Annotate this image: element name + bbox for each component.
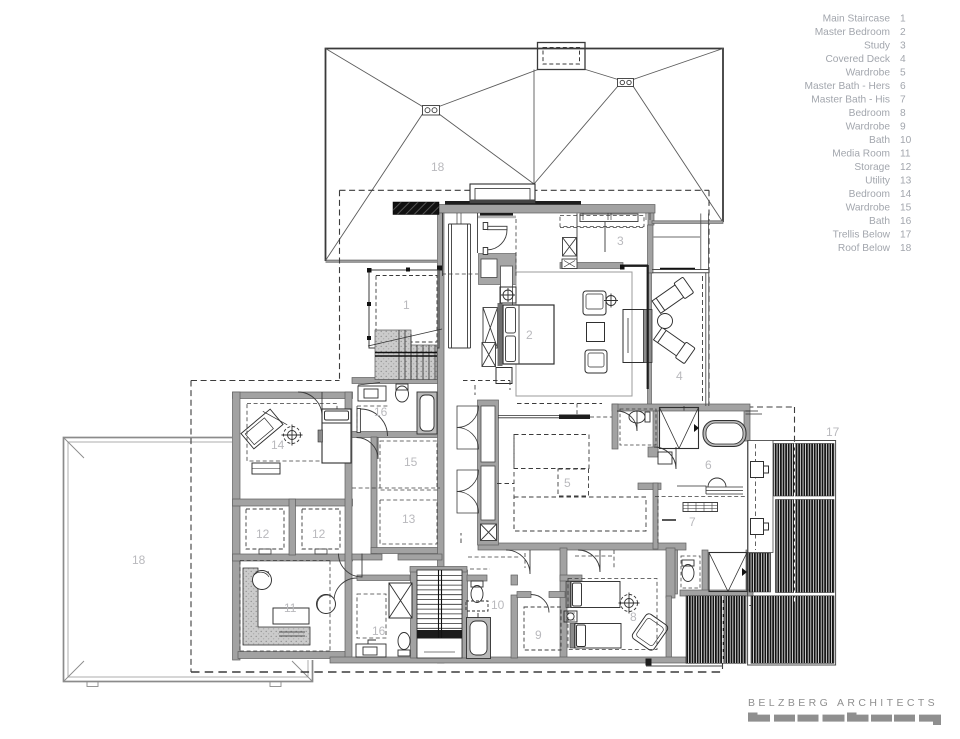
svg-text:18: 18 [431, 160, 445, 174]
svg-text:13: 13 [402, 512, 416, 526]
svg-text:Master Bath - His: Master Bath - His [811, 95, 890, 106]
svg-text:Main Staircase: Main Staircase [823, 14, 891, 25]
svg-text:16: 16 [374, 405, 388, 419]
svg-text:18: 18 [900, 243, 912, 254]
svg-text:Master Bath - Hers: Master Bath - Hers [805, 81, 891, 92]
svg-text:3: 3 [900, 41, 906, 52]
svg-text:Wardrobe: Wardrobe [846, 68, 891, 79]
svg-text:1: 1 [403, 298, 410, 312]
svg-text:Covered Deck: Covered Deck [825, 54, 890, 65]
svg-text:10: 10 [491, 598, 505, 612]
svg-text:Bedroom: Bedroom [849, 108, 890, 119]
svg-text:2: 2 [900, 27, 906, 38]
svg-text:Master Bedroom: Master Bedroom [815, 27, 890, 38]
svg-text:14: 14 [271, 438, 285, 452]
svg-text:Bath: Bath [869, 135, 890, 146]
svg-text:9: 9 [535, 628, 542, 642]
svg-text:12: 12 [900, 162, 912, 173]
svg-text:8: 8 [900, 108, 906, 119]
svg-text:Utility: Utility [865, 176, 891, 187]
svg-text:BELZBERG ARCHITECTS: BELZBERG ARCHITECTS [748, 697, 938, 709]
svg-text:16: 16 [372, 624, 386, 638]
svg-text:11: 11 [284, 601, 297, 615]
svg-text:Bath: Bath [869, 216, 890, 227]
svg-text:7: 7 [900, 95, 906, 106]
svg-text:14: 14 [900, 189, 912, 200]
svg-text:Wardrobe: Wardrobe [846, 122, 891, 133]
svg-text:4: 4 [900, 54, 906, 65]
svg-text:15: 15 [404, 455, 418, 469]
svg-text:6: 6 [705, 458, 712, 472]
svg-text:Study: Study [864, 41, 891, 52]
svg-text:1: 1 [900, 14, 906, 25]
svg-text:3: 3 [617, 234, 624, 248]
svg-text:Roof Below: Roof Below [838, 243, 891, 254]
svg-text:5: 5 [900, 68, 906, 79]
svg-text:2: 2 [526, 328, 533, 342]
svg-text:13: 13 [900, 176, 912, 187]
svg-text:8: 8 [630, 610, 637, 624]
svg-text:Bedroom: Bedroom [849, 189, 890, 200]
svg-text:Storage: Storage [854, 162, 890, 173]
svg-text:18: 18 [132, 553, 146, 567]
svg-text:4: 4 [676, 369, 683, 383]
svg-text:17: 17 [900, 230, 912, 241]
svg-text:12: 12 [312, 527, 326, 541]
svg-text:6: 6 [900, 81, 906, 92]
svg-text:15: 15 [900, 203, 912, 214]
svg-text:12: 12 [256, 527, 270, 541]
svg-text:11: 11 [900, 149, 911, 160]
svg-text:5: 5 [564, 476, 571, 490]
svg-text:9: 9 [900, 122, 906, 133]
svg-text:10: 10 [900, 135, 912, 146]
svg-text:Trellis Below: Trellis Below [833, 230, 891, 241]
svg-text:16: 16 [900, 216, 912, 227]
svg-text:Media Room: Media Room [832, 149, 890, 160]
svg-text:7: 7 [689, 515, 696, 529]
svg-text:Wardrobe: Wardrobe [846, 203, 891, 214]
svg-text:17: 17 [826, 425, 840, 439]
